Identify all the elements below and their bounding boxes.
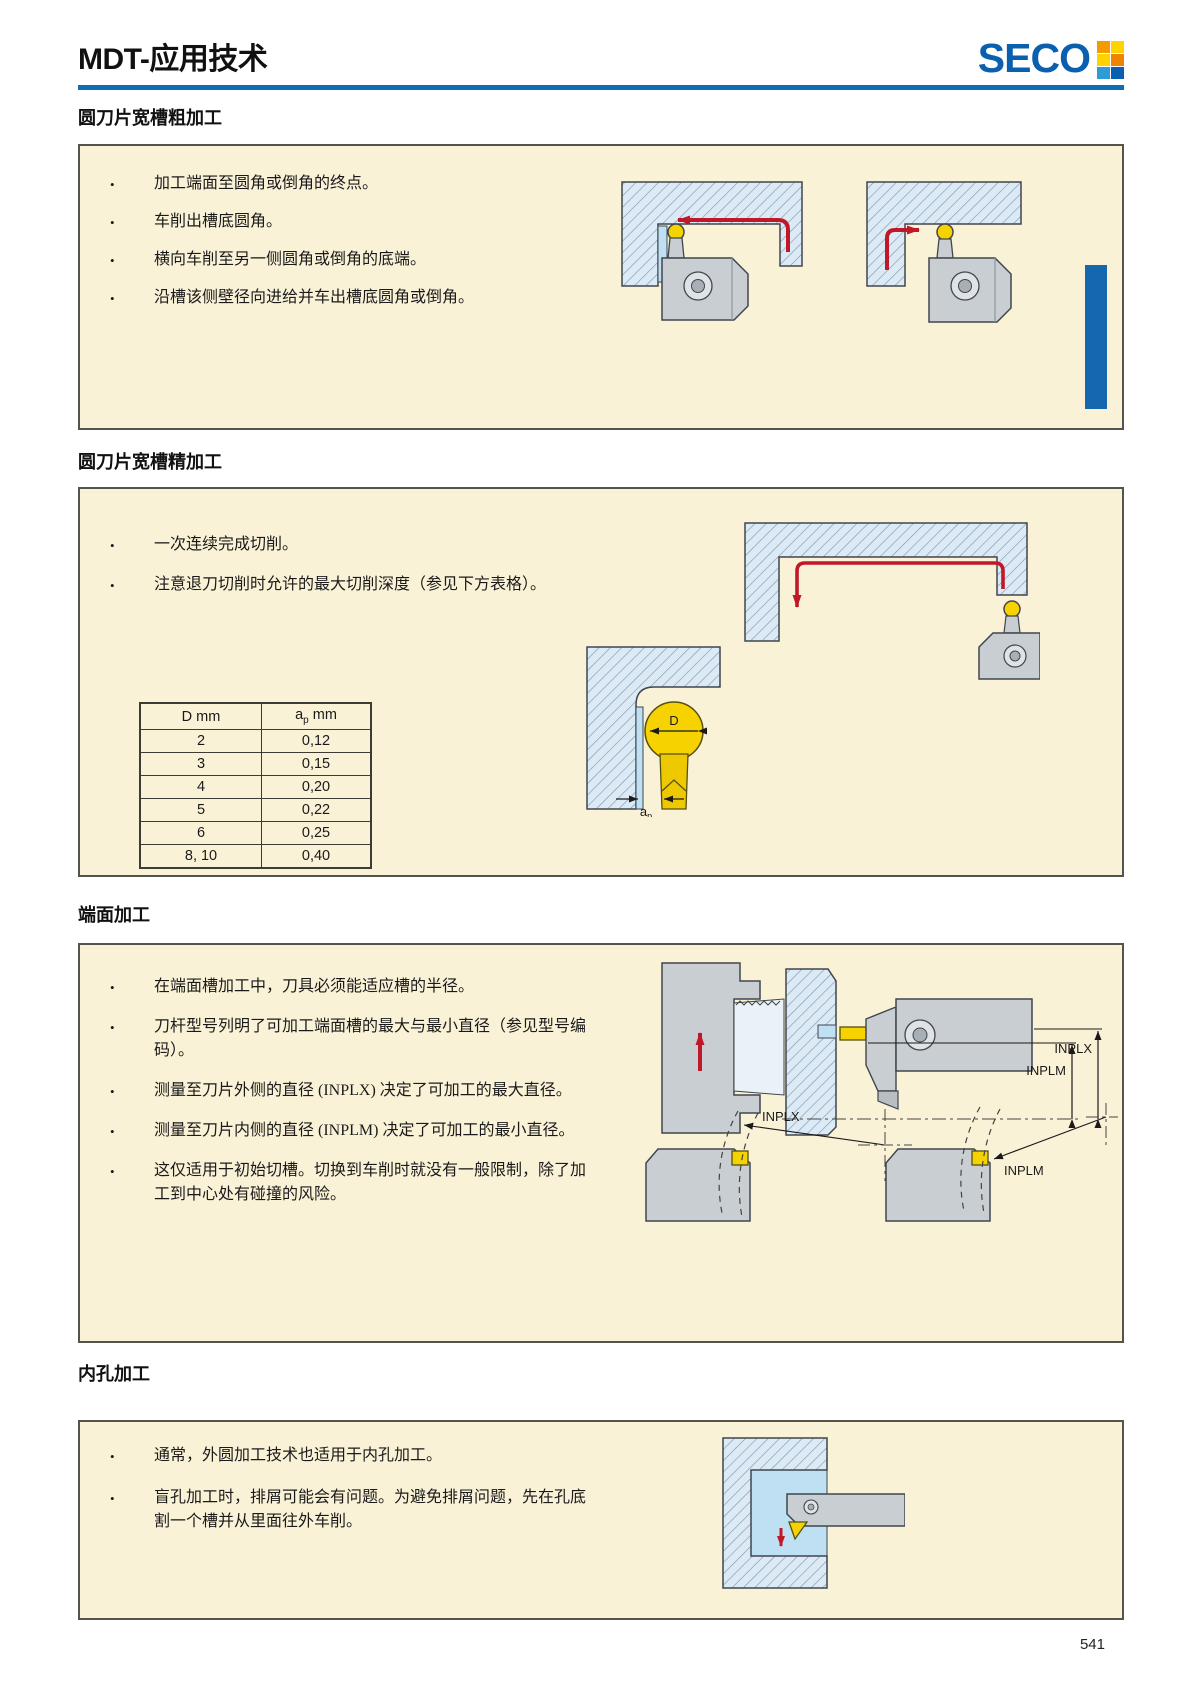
bullet-text: 横向车削至另一侧圆角或倒角的底端。 — [154, 248, 605, 272]
cell-d: 6 — [140, 822, 262, 845]
round-insert — [1004, 601, 1020, 617]
list-item: •测量至刀片内侧的直径 (INPLM) 决定了可加工的最小直径。 — [105, 1119, 601, 1143]
section-box-finishing: •一次连续完成切削。 •注意退刀切削时允许的最大切削深度（参见下方表格）。 D … — [78, 487, 1124, 877]
logo-square — [1097, 54, 1110, 66]
bullet-text: 测量至刀片外侧的直径 (INPLX) 决定了可加工的最大直径。 — [154, 1079, 601, 1103]
logo-square — [1097, 41, 1110, 53]
clamp-screw-center — [692, 280, 705, 293]
ap-unit: mm — [309, 707, 337, 723]
tool-nose — [866, 1007, 896, 1091]
diagram-finishing-path — [735, 509, 1040, 681]
insert-stem — [668, 238, 684, 258]
cell-d: 4 — [140, 776, 262, 799]
bullet-list: •通常，外圆加工技术也适用于内孔加工。 •盲孔加工时，排屑可能会有问题。为避免排… — [105, 1444, 589, 1534]
bullet-text: 这仅适用于初始切槽。切换到车削时就没有一般限制，除了加工到中心处有碰撞的风险。 — [154, 1159, 601, 1207]
radius-line — [994, 1117, 1106, 1159]
clamp-screw-center — [808, 1504, 814, 1510]
cell-ap: 0,25 — [262, 822, 372, 845]
clamp-screw-center — [959, 280, 972, 293]
list-item: •在端面槽加工中，刀具必须能适应槽的半径。 — [105, 975, 601, 999]
section-box-internal: •通常，外圆加工技术也适用于内孔加工。 •盲孔加工时，排屑可能会有问题。为避免排… — [78, 1420, 1124, 1620]
bullet-icon: • — [105, 1079, 154, 1103]
machined-surface — [636, 707, 643, 809]
bullet-text: 注意退刀切削时允许的最大切削深度（参见下方表格）。 — [154, 573, 765, 597]
cell-ap: 0,22 — [262, 799, 372, 822]
seco-logo-mark-icon — [1097, 41, 1124, 79]
page-title: MDT-应用技术 — [78, 34, 267, 78]
insert-stem — [937, 239, 953, 258]
cell-d: 8, 10 — [140, 845, 262, 869]
grooving-insert — [732, 1151, 748, 1165]
bullet-icon: • — [105, 1159, 154, 1207]
bullet-icon: • — [105, 210, 154, 234]
d-label: D — [669, 713, 678, 728]
logo-square — [1097, 67, 1110, 79]
list-item: •盲孔加工时，排屑可能会有问题。为避免排屑问题，先在孔底割一个槽并从里面往外车削… — [105, 1486, 589, 1534]
logo-square — [1111, 41, 1124, 53]
list-item: •车削出槽底圆角。 — [105, 210, 605, 234]
bullet-text: 车削出槽底圆角。 — [154, 210, 605, 234]
ap-label-sub: p — [647, 811, 652, 817]
bullet-list: •加工端面至圆角或倒角的终点。 •车削出槽底圆角。 •横向车削至另一侧圆角或倒角… — [105, 172, 605, 310]
bullet-icon: • — [105, 533, 154, 557]
bullet-icon: • — [105, 286, 154, 310]
bullet-text: 沿槽该侧壁径向进给并车出槽底圆角或倒角。 — [154, 286, 605, 310]
table-row: 40,20 — [140, 776, 371, 799]
bullet-text: 在端面槽加工中，刀具必须能适应槽的半径。 — [154, 975, 601, 999]
bullet-list: •一次连续完成切削。 •注意退刀切削时允许的最大切削深度（参见下方表格）。 — [105, 533, 765, 597]
section-heading-finishing: 圆刀片宽槽精加工 — [78, 448, 222, 474]
catalog-page: MDT-应用技术 SECO 圆刀片宽槽粗加工 •加工端面至圆角或倒角的终点。 •… — [0, 0, 1200, 1697]
list-item: •通常，外圆加工技术也适用于内孔加工。 — [105, 1444, 589, 1468]
logo-square — [1111, 54, 1124, 66]
bullet-text: 通常，外圆加工技术也适用于内孔加工。 — [154, 1444, 589, 1468]
diagram-roughing-left — [610, 174, 810, 326]
radius-line — [744, 1125, 885, 1145]
bullet-text: 盲孔加工时，排屑可能会有问题。为避免排屑问题，先在孔底割一个槽并从里面往外车削。 — [154, 1486, 589, 1534]
section-heading-roughing: 圆刀片宽槽粗加工 — [78, 104, 222, 130]
cell-d: 3 — [140, 753, 262, 776]
diagram-internal-machining — [695, 1432, 905, 1590]
list-item: •加工端面至圆角或倒角的终点。 — [105, 172, 605, 196]
inplm-label: INPLM — [1026, 1063, 1066, 1078]
cell-d: 5 — [140, 799, 262, 822]
list-item: •这仅适用于初始切槽。切换到车削时就没有一般限制，除了加工到中心处有碰撞的风险。 — [105, 1159, 601, 1207]
bullet-icon: • — [105, 1486, 154, 1534]
diagram-face-grooving-radii: INPLX INPLM — [638, 1103, 1118, 1335]
list-item: •测量至刀片外侧的直径 (INPLX) 决定了可加工的最大直径。 — [105, 1079, 601, 1103]
round-insert — [937, 224, 953, 240]
cell-ap: 0,15 — [262, 753, 372, 776]
bullet-icon: • — [105, 975, 154, 999]
table-header-row: D mm ap mm — [140, 703, 371, 730]
page-number: 541 — [1025, 1636, 1105, 1653]
clamp-screw-center — [1010, 651, 1020, 661]
ap-base: a — [295, 707, 303, 723]
insert-stem — [1004, 616, 1020, 633]
list-item: •注意退刀切削时允许的最大切削深度（参见下方表格）。 — [105, 573, 765, 597]
section-box-roughing: •加工端面至圆角或倒角的终点。 •车削出槽底圆角。 •横向车削至另一侧圆角或倒角… — [78, 144, 1124, 430]
inplx-label: INPLX — [1054, 1041, 1092, 1056]
logo-square — [1111, 67, 1124, 79]
insert-shank — [660, 754, 688, 809]
header-rule — [78, 85, 1124, 90]
bullet-text: 加工端面至圆角或倒角的终点。 — [154, 172, 605, 196]
section-box-facing: •在端面槽加工中，刀具必须能适应槽的半径。 •刀杆型号列明了可加工端面槽的最大与… — [78, 943, 1124, 1343]
bullet-icon: • — [105, 1444, 154, 1468]
bullet-icon: • — [105, 1119, 154, 1143]
seco-logo-text: SECO — [978, 40, 1090, 77]
seco-logo: SECO — [900, 40, 1124, 79]
table-row: 8, 100,40 — [140, 845, 371, 869]
ap-label: ap — [640, 804, 652, 817]
list-item: •一次连续完成切削。 — [105, 533, 765, 557]
bullet-icon: • — [105, 1015, 154, 1063]
spindle-cone — [734, 999, 784, 1095]
clamp-screw-center — [913, 1028, 927, 1042]
depth-table: D mm ap mm 20,12 30,15 40,20 50,22 60,25… — [139, 702, 372, 869]
list-item: •刀杆型号列明了可加工端面槽的最大与最小直径（参见型号编码）。 — [105, 1015, 601, 1063]
diagram-roughing-right — [854, 174, 1034, 326]
cell-ap: 0,40 — [262, 845, 372, 869]
inplm-label: INPLM — [1004, 1163, 1044, 1178]
bullet-icon: • — [105, 248, 154, 272]
list-item: •横向车削至另一侧圆角或倒角的底端。 — [105, 248, 605, 272]
table-row: 20,12 — [140, 730, 371, 753]
cell-ap: 0,20 — [262, 776, 372, 799]
diagram-insert-depth: D ap — [562, 639, 747, 817]
bullet-icon: • — [105, 172, 154, 196]
face-groove — [818, 1025, 836, 1038]
bullet-text: 测量至刀片内侧的直径 (INPLM) 决定了可加工的最小直径。 — [154, 1119, 601, 1143]
col-header-d: D mm — [140, 703, 262, 730]
table-row: 50,22 — [140, 799, 371, 822]
section-heading-facing: 端面加工 — [78, 901, 150, 927]
bullet-list: •在端面槽加工中，刀具必须能适应槽的半径。 •刀杆型号列明了可加工端面槽的最大与… — [105, 975, 601, 1207]
section-heading-internal: 内孔加工 — [78, 1360, 150, 1386]
inplx-label: INPLX — [762, 1109, 800, 1124]
grooving-insert — [840, 1027, 866, 1040]
list-item: •沿槽该侧壁径向进给并车出槽底圆角或倒角。 — [105, 286, 605, 310]
grooving-insert — [972, 1151, 988, 1165]
bullet-text: 一次连续完成切削。 — [154, 533, 765, 557]
bullet-icon: • — [105, 573, 154, 597]
cell-ap: 0,12 — [262, 730, 372, 753]
feed-arrow — [797, 563, 1003, 607]
table-row: 30,15 — [140, 753, 371, 776]
cell-d: 2 — [140, 730, 262, 753]
table-row: 60,25 — [140, 822, 371, 845]
bullet-text: 刀杆型号列明了可加工端面槽的最大与最小直径（参见型号编码）。 — [154, 1015, 601, 1063]
col-header-ap: ap mm — [262, 703, 372, 730]
workpiece — [745, 523, 1027, 641]
page-index-tab — [1085, 265, 1107, 409]
feed-arrow — [678, 220, 788, 252]
